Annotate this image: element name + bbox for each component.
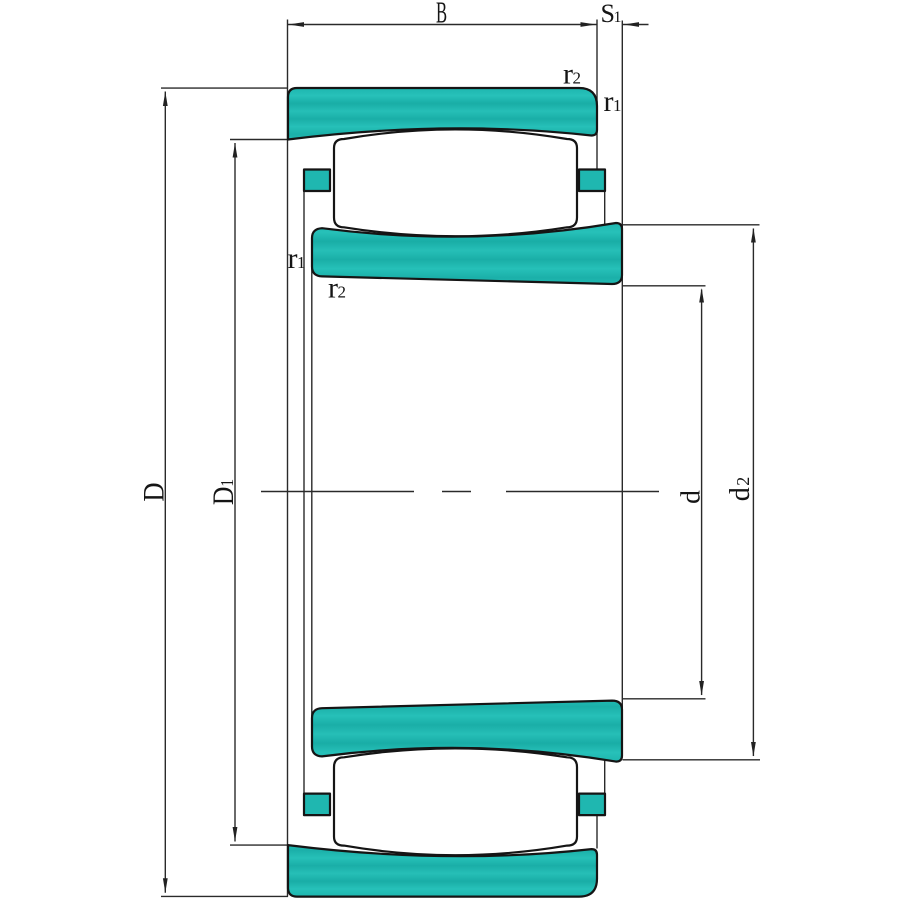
svg-text:B: B — [436, 0, 447, 30]
svg-text:D: D — [138, 482, 171, 501]
svg-text:d: d — [675, 490, 706, 504]
